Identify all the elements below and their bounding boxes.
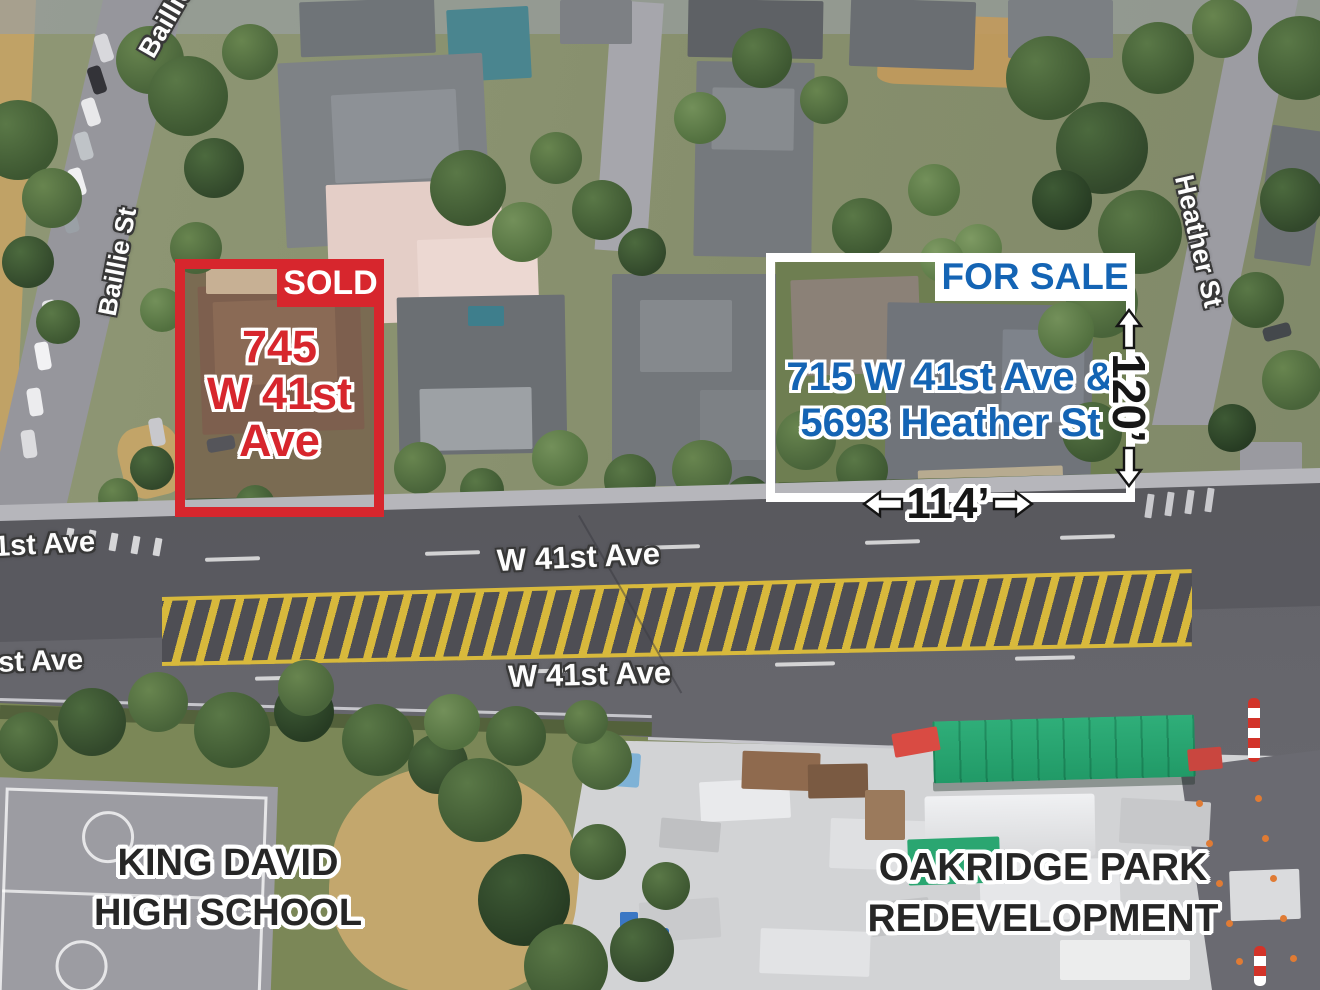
- lot-frontage-value: 114’: [906, 480, 989, 528]
- for-sale-badge-label: FOR SALE: [941, 256, 1128, 297]
- for-sale-property-box: FOR SALE 715 W 41st Ave & 5693 Heather S…: [766, 253, 1135, 502]
- tree: [642, 862, 690, 910]
- street-label-41st-left-upper: 41st Ave: [0, 526, 96, 565]
- tree: [58, 688, 126, 756]
- school-label: KING DAVID HIGH SCHOOL: [48, 838, 408, 938]
- arrow-up-icon: [1114, 308, 1144, 350]
- tree: [0, 712, 58, 772]
- tree: [438, 758, 522, 842]
- redevelopment-label-line: OAKRIDGE PARK: [838, 842, 1248, 893]
- redevelopment-label: OAKRIDGE PARK REDEVELOPMENT: [838, 842, 1248, 945]
- street-label-w41st-upper: W 41st Ave: [496, 536, 661, 579]
- tree: [486, 706, 546, 766]
- for-sale-badge: FOR SALE: [935, 253, 1135, 301]
- school-label-line: KING DAVID: [48, 838, 408, 888]
- tree: [278, 660, 334, 716]
- tree: [194, 692, 270, 768]
- sold-badge-label: SOLD: [283, 264, 377, 302]
- tree: [564, 700, 608, 744]
- street-label-41st-left-lower: 41st Ave: [0, 644, 84, 681]
- lot-frontage-dimension: 114’: [862, 480, 1034, 528]
- sold-address-line: W 41st: [185, 370, 374, 417]
- tree: [570, 824, 626, 880]
- lot-depth-dimension: 120’: [1100, 308, 1158, 488]
- street-label-w41st-lower: W 41st Ave: [508, 655, 672, 695]
- arrow-left-icon: [862, 489, 904, 519]
- sold-address: 745 W 41st Ave: [185, 323, 374, 464]
- tree: [424, 694, 480, 750]
- aerial-map: Baillie St Baillie St Heather St 41st Av…: [0, 0, 1320, 990]
- sold-badge: SOLD: [277, 259, 384, 307]
- school-label-line: HIGH SCHOOL: [48, 888, 408, 938]
- sold-property-box: SOLD 745 W 41st Ave: [175, 259, 384, 517]
- redevelopment-label-line: REDEVELOPMENT: [838, 893, 1248, 944]
- arrow-right-icon: [992, 489, 1034, 519]
- sold-address-line: Ave: [185, 417, 374, 464]
- lot-depth-value: 120’: [1102, 353, 1156, 443]
- arrow-down-icon: [1114, 446, 1144, 488]
- tree: [610, 918, 674, 982]
- sold-address-line: 745: [185, 323, 374, 370]
- tree: [342, 704, 414, 776]
- tree: [128, 672, 188, 732]
